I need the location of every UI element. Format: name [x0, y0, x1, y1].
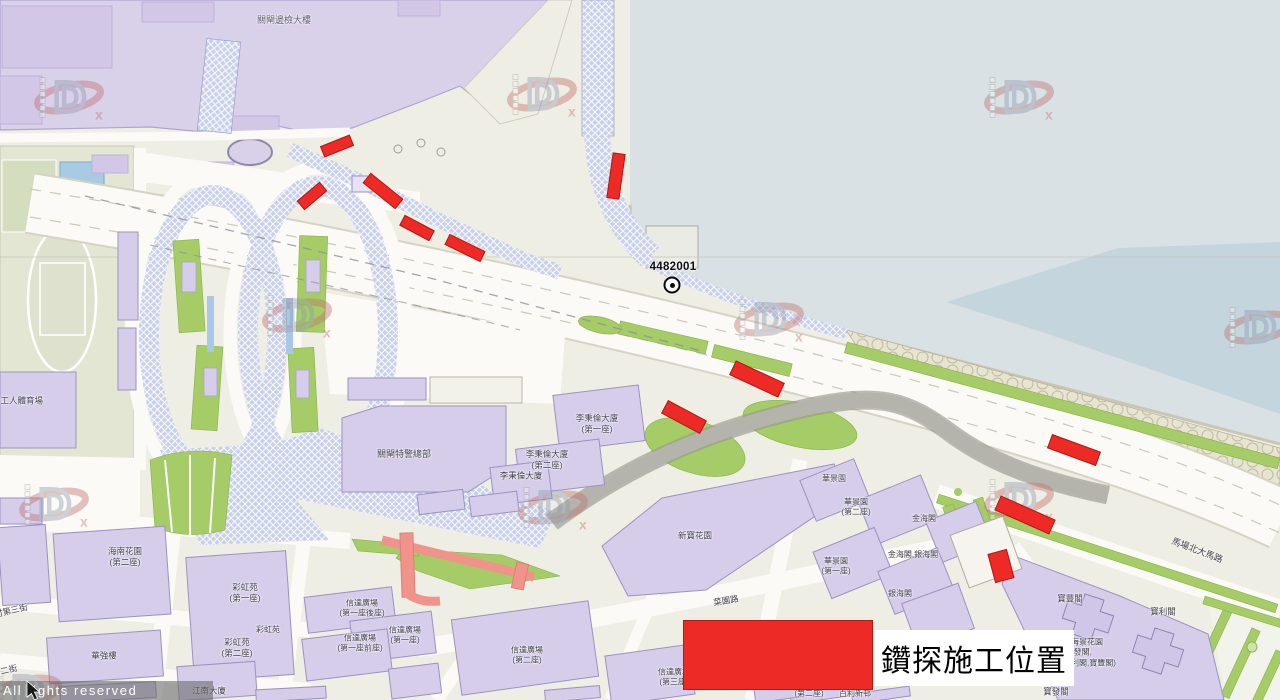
legend: 鑽探施工位置 — [874, 630, 1074, 686]
legend-label: 鑽探施工位置 — [881, 636, 1067, 680]
drill-site-marker — [661, 400, 707, 434]
drill-site-marker — [729, 360, 785, 397]
drill-site-marker — [606, 152, 625, 199]
drill-markers-layer — [0, 0, 1280, 700]
drill-site-marker — [444, 234, 485, 262]
map-canvas[interactable]: D x D x — [0, 0, 1280, 700]
drill-site-marker — [320, 134, 354, 157]
drill-site-marker — [297, 182, 328, 210]
drill-site-marker — [399, 215, 435, 242]
drill-site-marker — [987, 549, 1014, 583]
drill-site-marker — [994, 495, 1055, 534]
mouse-cursor — [24, 679, 44, 700]
legend-drill-swatch — [683, 620, 873, 690]
drill-site-marker — [363, 173, 404, 210]
drill-site-marker — [1047, 434, 1101, 466]
